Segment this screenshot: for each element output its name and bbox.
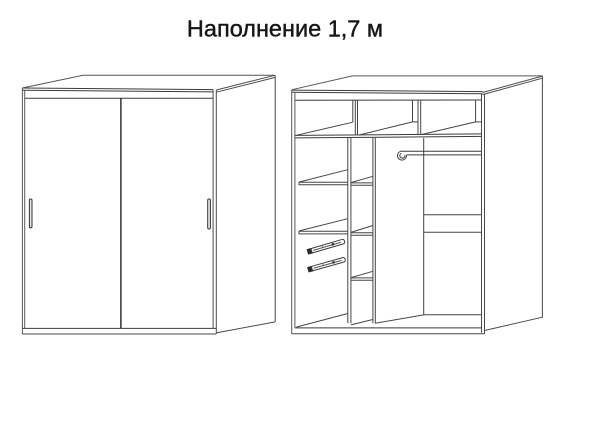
svg-text:Наполнение 1,7 м: Наполнение 1,7 м xyxy=(187,16,383,42)
